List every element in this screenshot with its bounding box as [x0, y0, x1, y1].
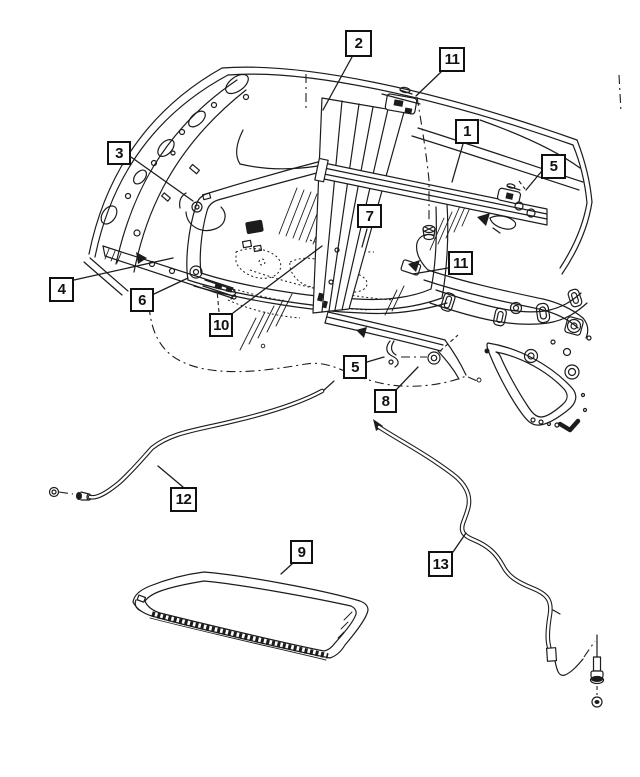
callout-box-6[interactable]: 6: [130, 288, 154, 312]
callout-box-1[interactable]: 1: [455, 119, 479, 144]
drain-spout-front-left: [186, 193, 225, 230]
sunroof-seal: [133, 572, 368, 660]
sunroof-motor: [245, 220, 264, 235]
callout-box-13[interactable]: 13: [428, 551, 453, 577]
callout-box-11-top[interactable]: 11: [439, 47, 465, 72]
guide-track: [313, 87, 420, 313]
parts-diagram-canvas: 2 11 1 3 5 7 11 4 6 10 5 8 12 9 13: [0, 0, 640, 777]
bolt-12: [50, 488, 92, 501]
callout-box-3[interactable]: 3: [107, 141, 131, 165]
drain-tube-right: [373, 419, 583, 675]
wiring-harness-dotted: [228, 240, 392, 318]
callout-box-5-lower[interactable]: 5: [343, 355, 367, 379]
rail-cutouts: [440, 288, 583, 326]
rail-bolt-bosses: [511, 303, 592, 380]
callout-box-2[interactable]: 2: [345, 30, 372, 57]
drain-clip-and-grommet: [387, 341, 440, 367]
screw-13: [591, 635, 604, 707]
callout-box-4[interactable]: 4: [49, 277, 74, 302]
quarter-glass: [485, 343, 587, 430]
callout-box-5-upper[interactable]: 5: [541, 154, 566, 179]
callout-box-8[interactable]: 8: [374, 389, 397, 413]
callout-box-9[interactable]: 9: [290, 540, 313, 564]
parts-drawing: [0, 0, 640, 777]
callout-box-11-mid[interactable]: 11: [448, 251, 473, 275]
callout-box-10[interactable]: 10: [209, 313, 233, 337]
drain-tube-left: [90, 381, 334, 497]
callout-box-12[interactable]: 12: [170, 487, 197, 512]
callout-box-7[interactable]: 7: [357, 204, 382, 228]
screw-11: [423, 226, 435, 240]
